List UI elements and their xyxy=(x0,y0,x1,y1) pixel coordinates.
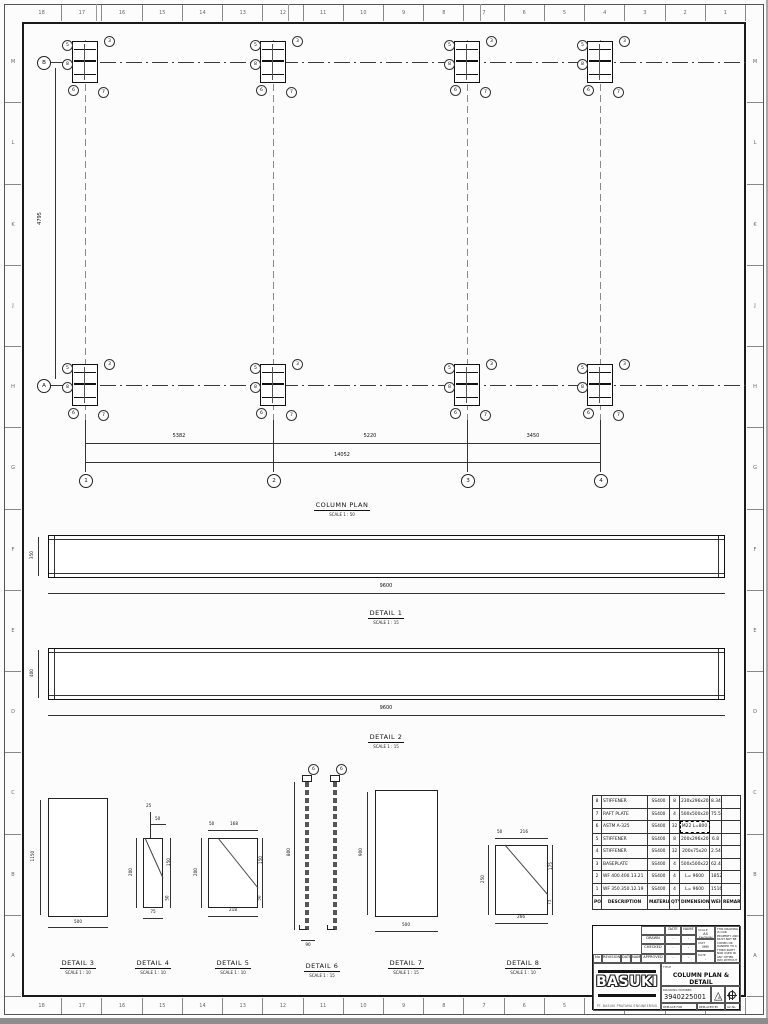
grid-bubble: 2 xyxy=(267,474,281,488)
detail4-dim-right1: 150 xyxy=(167,858,171,866)
detail5-dim-right1: 150 xyxy=(259,856,263,864)
rev-name-header: NAME xyxy=(631,954,641,963)
material-cell-pos: 8 xyxy=(593,796,602,809)
dimension-line xyxy=(136,838,137,908)
callout-balloon: 6 xyxy=(68,408,79,419)
detail4-dim-top2: 50 xyxy=(155,817,160,821)
callout-balloon: 7 xyxy=(286,87,297,98)
date-cell: DATE - xyxy=(696,951,715,963)
callout-balloon: 7 xyxy=(613,410,624,421)
anchor-bolt xyxy=(305,782,309,930)
material-cell-remark xyxy=(722,846,741,859)
material-cell-description: WF 400.400.13.21 xyxy=(602,871,648,884)
material-row: 4STIFFENERSS40032200x75x202.54 xyxy=(593,846,741,859)
total-dim: 14052 xyxy=(314,453,370,458)
detail8-dim-top1: 50 xyxy=(497,830,502,834)
drawing-number-cell: DRAWING NUMBER 3940225001 xyxy=(661,986,711,1003)
grid-bubble: B xyxy=(37,56,51,70)
callout-balloon: 8 xyxy=(62,382,73,393)
ruler-number: 12 xyxy=(263,5,303,21)
detail1-title: DETAIL 1 SCALE 1 : 15 xyxy=(343,600,429,625)
checked-name: - xyxy=(681,944,696,954)
dimension-line xyxy=(262,838,263,908)
material-header-cell: QTY xyxy=(670,896,680,910)
scale-cell: SCALE AS SHOWN xyxy=(696,926,715,939)
ruler-number: 9 xyxy=(384,998,424,1014)
callout-balloon: 6 xyxy=(256,408,267,419)
ruler-number: 5 xyxy=(545,998,585,1014)
detail1-label: DETAIL 1 xyxy=(368,609,405,619)
dimension-line xyxy=(375,931,438,932)
grid-line-vertical xyxy=(600,40,601,472)
logo-bar-top xyxy=(598,970,656,973)
ruler-number: 18 xyxy=(22,998,62,1014)
material-cell-weight xyxy=(710,821,722,834)
ruler-letter: E xyxy=(5,591,21,672)
column-symbol xyxy=(72,364,98,406)
detail3-title: DETAIL 3 SCALE 1 : 10 xyxy=(35,950,121,975)
material-cell-qty: 32 xyxy=(670,821,680,834)
callout-balloon: 6 xyxy=(336,764,347,775)
extension-line xyxy=(467,420,468,472)
detail5-label: DETAIL 5 xyxy=(215,959,252,969)
material-row: 6ASTM A-325SS40032M22 L=800 xyxy=(593,821,741,834)
ruler-number: 9 xyxy=(384,5,424,21)
ruler-letter: F xyxy=(747,510,763,591)
ruler-number: 14 xyxy=(183,998,223,1014)
callout-balloon: 7 xyxy=(480,87,491,98)
material-row: 2WF 400.400.13.21SS4004L= 96001852 xyxy=(593,871,741,884)
detail7-label: DETAIL 7 xyxy=(388,959,425,969)
material-table: 8STIFFENERSS4008230x296x208.347RAFT PLAT… xyxy=(592,795,741,910)
callout-balloon: 6 xyxy=(450,408,461,419)
callout-balloon: 6 xyxy=(583,408,594,419)
callout-balloon: 5 xyxy=(444,40,455,51)
callout-balloon: 3 xyxy=(292,36,303,47)
material-header-cell: DESCRIPTION xyxy=(602,896,648,910)
extension-line xyxy=(600,420,601,472)
ruler-letter: J xyxy=(747,266,763,347)
ruler-letter: M xyxy=(747,22,763,103)
ruler-letter: G xyxy=(747,428,763,509)
material-cell-material: SS400 xyxy=(648,821,670,834)
ruler-number: 18 xyxy=(22,5,62,21)
ruler-letter: A xyxy=(5,916,21,997)
detail8-label: DETAIL 8 xyxy=(505,959,542,969)
callout-balloon: 3 xyxy=(292,359,303,370)
ruler-number: 11 xyxy=(304,998,344,1014)
ruler-top: 181716151413121110987654321 xyxy=(22,5,746,21)
detail3-label: DETAIL 3 xyxy=(60,959,97,969)
callout-balloon: 5 xyxy=(250,363,261,374)
callout-balloon: 8 xyxy=(444,59,455,70)
detail3-plate xyxy=(48,798,108,917)
anchor-bolt-head xyxy=(302,775,312,782)
detail3-dim-bottom: 500 xyxy=(58,920,98,924)
grid-bubble: 3 xyxy=(461,474,475,488)
detail3-dim-left: 1150 xyxy=(31,851,35,862)
ruler-number: 13 xyxy=(223,5,263,21)
ruler-number: 17 xyxy=(62,998,102,1014)
callout-balloon: 6 xyxy=(256,85,267,96)
footer-replace-for: REPLACE FOR xyxy=(661,1003,697,1011)
detail6-title: DETAIL 6 SCALE 1 : 15 xyxy=(279,953,365,978)
callout-balloon: 3 xyxy=(104,359,115,370)
dimension-line xyxy=(208,830,258,831)
detail2-beam xyxy=(48,648,725,700)
detail4-dim-left: 200 xyxy=(129,868,133,876)
material-cell-pos: 3 xyxy=(593,858,602,871)
callout-balloon: 7 xyxy=(613,87,624,98)
approved-name: - xyxy=(681,954,696,963)
callout-balloon: 8 xyxy=(577,382,588,393)
rev-no-header: No xyxy=(593,954,602,963)
material-row: 8STIFFENERSS4008230x296x208.34 xyxy=(593,796,741,809)
ruler-letter: C xyxy=(747,753,763,834)
material-cell-qty: 8 xyxy=(670,796,680,809)
detail4-dim-top1: 25 xyxy=(146,804,151,808)
ruler-number: 17 xyxy=(62,5,102,21)
detail1-scale: SCALE 1 : 15 xyxy=(343,620,429,625)
material-cell-remark xyxy=(722,883,741,896)
material-cell-description: STIFFENER xyxy=(602,796,648,809)
ruler-left: MLKJHGFEDCBA xyxy=(5,22,21,997)
callout-balloon: 7 xyxy=(286,410,297,421)
callout-balloon: 5 xyxy=(62,40,73,51)
detail8-bevel-line xyxy=(495,845,548,915)
plan-title-text: COLUMN PLAN xyxy=(314,501,371,511)
dimension-line xyxy=(201,838,202,908)
callout-balloon: 5 xyxy=(250,40,261,51)
scan-edge xyxy=(0,1018,768,1024)
ruler-number: 5 xyxy=(545,5,585,21)
detail4-bevel-line xyxy=(143,838,163,908)
ruler-letter: J xyxy=(5,266,21,347)
dimension-line xyxy=(367,792,368,915)
detail7-scale: SCALE 1 : 15 xyxy=(363,970,449,975)
ruler-number: 13 xyxy=(223,998,263,1014)
detail7-dim-left: 900 xyxy=(359,848,363,856)
name-header: NAME xyxy=(681,926,696,935)
material-cell-pos: 6 xyxy=(593,821,602,834)
projection-cell xyxy=(725,986,741,1003)
ruler-letter: K xyxy=(747,185,763,266)
material-cell-remark xyxy=(722,796,741,809)
checked-label: CHECKED xyxy=(641,944,665,954)
title-label: TITLE xyxy=(662,964,740,969)
callout-balloon: 3 xyxy=(486,36,497,47)
detail5-dim-top2: 168 xyxy=(230,822,238,826)
approved-label: APPROVED xyxy=(641,954,665,963)
detail8-dim-right1: 175 xyxy=(549,862,553,870)
footer-replaced-by: REPLACED BY xyxy=(697,1003,725,1011)
detail8-dim-right2: 75 xyxy=(548,899,552,904)
material-cell-dimensions: 230x296x20 xyxy=(680,796,710,809)
drawn-name: - xyxy=(681,935,696,944)
drawing-number: 3940225001 xyxy=(662,993,710,1001)
dimension-line xyxy=(495,923,548,924)
span-dim-2: 5220 xyxy=(342,434,398,439)
unit-value: MM xyxy=(697,945,714,949)
material-cell-dimensions: L= 9600 xyxy=(680,871,710,884)
material-cell-weight: 2.54 xyxy=(710,846,722,859)
callout-balloon: 5 xyxy=(62,363,73,374)
material-cell-description: STIFFENER xyxy=(602,846,648,859)
detail3-scale: SCALE 1 : 10 xyxy=(35,970,121,975)
ruler-letter: M xyxy=(5,22,21,103)
material-cell-weight: 1516 xyxy=(710,883,722,896)
detail2-label: DETAIL 2 xyxy=(368,733,405,743)
material-cell-material: SS400 xyxy=(648,858,670,871)
callout-balloon: 3 xyxy=(619,36,630,47)
callout-balloon: 6 xyxy=(583,85,594,96)
material-cell-weight: 1852 xyxy=(710,871,722,884)
dimension-line xyxy=(38,650,39,698)
callout-balloon: 8 xyxy=(444,382,455,393)
material-cell-weight: 62.4 xyxy=(710,858,722,871)
detail6-scale: SCALE 1 : 15 xyxy=(279,973,365,978)
material-row: 1WF 350.350.12.19SS4004L= 96001516 xyxy=(593,883,741,896)
material-cell-description: WF 350.350.12.19 xyxy=(602,883,648,896)
anchor-bolt-hook xyxy=(327,925,335,930)
date-header: DATE xyxy=(665,926,681,935)
extension-line xyxy=(273,420,274,472)
material-header-row: POSDESCRIPTIONMATERIALQTYDIMENSIONSWEIGH… xyxy=(593,896,741,910)
material-cell-remark xyxy=(722,821,741,834)
ruler-letter: K xyxy=(5,185,21,266)
column-symbol xyxy=(260,41,286,83)
material-row: 7RAFT PLATESS4004500x500x2075.5 xyxy=(593,808,741,821)
column-symbol xyxy=(72,41,98,83)
column-symbol xyxy=(260,364,286,406)
ruler-number: 8 xyxy=(424,5,464,21)
ruler-letter: B xyxy=(5,835,21,916)
dimension-line xyxy=(38,537,39,576)
callout-balloon: 5 xyxy=(577,40,588,51)
callout-balloon: 3 xyxy=(619,359,630,370)
column-symbol xyxy=(454,41,480,83)
ruler-letter: L xyxy=(747,103,763,184)
ruler-number: 14 xyxy=(183,5,223,21)
grid-bubble: A xyxy=(37,379,51,393)
material-header-cell: WEIGHT xyxy=(710,896,722,910)
detail1-dim-left: 350 xyxy=(30,551,34,559)
material-cell-description: RAFT PLATE xyxy=(602,808,648,821)
ruler-number: 16 xyxy=(102,998,142,1014)
material-cell-pos: 2 xyxy=(593,871,602,884)
detail8-dim-top2: 216 xyxy=(520,830,528,834)
material-cell-qty: 8 xyxy=(670,833,680,846)
dimension-line xyxy=(143,918,163,919)
company-logo: BASUKI PT. BASUKI PRATAMA ENGINEERING xyxy=(593,963,661,1011)
material-cell-description: BASEPLATE xyxy=(602,858,648,871)
ruler-number: 10 xyxy=(344,998,384,1014)
detail7-plate xyxy=(375,790,438,917)
callout-balloon: 7 xyxy=(98,87,109,98)
dimension-line xyxy=(40,800,41,915)
detail2-dim-bottom: 9600 xyxy=(330,706,442,711)
material-cell-qty: 4 xyxy=(670,871,680,884)
detail5-dim-bottom: 218 xyxy=(213,908,253,912)
detail5-scale: SCALE 1 : 10 xyxy=(190,970,276,975)
detail6-dim-left: 800 xyxy=(287,848,291,856)
callout-balloon: 8 xyxy=(250,382,261,393)
drawing-title: COLUMN PLAN & DETAIL xyxy=(662,972,740,986)
ruler-letter: C xyxy=(5,753,21,834)
dimension-line xyxy=(48,715,725,716)
detail4-dim-bottom: 75 xyxy=(133,910,173,914)
callout-balloon: 8 xyxy=(250,59,261,70)
ruler-letter: D xyxy=(5,672,21,753)
ruler-number: 16 xyxy=(102,5,142,21)
detail5-dim-top1: 50 xyxy=(209,822,214,826)
material-cell-remark xyxy=(722,808,741,821)
grid-bubble: 4 xyxy=(594,474,608,488)
dimension-line xyxy=(495,838,548,839)
span-dim-3: 3450 xyxy=(505,434,561,439)
material-cell-material: SS400 xyxy=(648,808,670,821)
material-cell-qty: 4 xyxy=(670,858,680,871)
grid-line-vertical xyxy=(85,40,86,472)
rev-header: REVISION xyxy=(602,954,621,963)
material-cell-qty: 32 xyxy=(670,846,680,859)
callout-balloon: 7 xyxy=(98,410,109,421)
ruler-letter: L xyxy=(5,103,21,184)
material-cell-dimensions: 200x75x20 xyxy=(680,846,710,859)
material-cell-weight: 8.34 xyxy=(710,796,722,809)
ruler-number: 1 xyxy=(706,5,746,21)
material-row: 5STIFFENERSS4008200x296x206.8 xyxy=(593,833,741,846)
callout-balloon: 3 xyxy=(104,36,115,47)
approved-date: - xyxy=(665,954,681,963)
material-cell-pos: 4 xyxy=(593,846,602,859)
anchor-bolt xyxy=(333,782,337,930)
detail5-dim-left: 200 xyxy=(194,868,198,876)
dimension-line xyxy=(85,462,600,463)
detail6-dim-bottom: 90 xyxy=(288,943,328,947)
anchor-bolt-head xyxy=(330,775,340,782)
dimension-line xyxy=(208,916,258,917)
material-row: 3BASEPLATESS4004500x500x2262.4 xyxy=(593,858,741,871)
rev-date-header: DATE xyxy=(621,954,631,963)
scale-value: AS SHOWN xyxy=(697,932,714,940)
ruler-letter: H xyxy=(5,347,21,428)
dimension-line xyxy=(48,927,108,928)
ruler-number: 3 xyxy=(625,5,665,21)
material-cell-qty: 4 xyxy=(670,808,680,821)
detail2-title: DETAIL 2 SCALE 1 : 15 xyxy=(343,724,429,749)
column-symbol xyxy=(587,364,613,406)
detail5-title: DETAIL 5 SCALE 1 : 10 xyxy=(190,950,276,975)
material-cell-material: SS400 xyxy=(648,883,670,896)
material-cell-material: SS400 xyxy=(648,833,670,846)
revision-cell: △ A xyxy=(711,986,725,1003)
callout-balloon: 6 xyxy=(68,85,79,96)
material-cell-dimensions: 200x296x20 xyxy=(680,833,710,846)
material-cell-pos: 7 xyxy=(593,808,602,821)
dimension-line xyxy=(85,443,600,444)
detail5-bevel-line xyxy=(208,838,258,908)
plan-title: COLUMN PLAN SCALE 1 : 50 xyxy=(299,492,385,517)
detail1-beam xyxy=(48,535,725,578)
material-cell-material: SS400 xyxy=(648,846,670,859)
ruler-number: 4 xyxy=(585,5,625,21)
material-cell-remark xyxy=(722,858,741,871)
callout-balloon: 5 xyxy=(444,363,455,374)
drawing-title-cell: TITLE COLUMN PLAN & DETAIL xyxy=(661,963,741,986)
grid-line-vertical xyxy=(467,40,468,472)
dimension-line xyxy=(301,940,315,941)
projection-cone-icon xyxy=(739,992,741,1000)
ruler-letter: H xyxy=(747,347,763,428)
detail6-label: DETAIL 6 xyxy=(304,962,341,972)
revision-letter: A xyxy=(718,996,720,1000)
extension-line xyxy=(85,420,86,472)
ruler-number: 12 xyxy=(263,998,303,1014)
material-cell-description: ASTM A-325 xyxy=(602,821,648,834)
ruler-number: 7 xyxy=(464,5,504,21)
footer-sheet-size: A2 No. xyxy=(725,1003,741,1011)
dimension-line xyxy=(552,845,553,915)
ruler-letter: G xyxy=(5,428,21,509)
detail1-dim-bottom: 9600 xyxy=(330,584,442,589)
detail7-dim-bottom: 500 xyxy=(386,923,426,927)
material-cell-pos: 5 xyxy=(593,833,602,846)
logo-bar-bottom xyxy=(598,994,656,997)
callout-balloon: 5 xyxy=(577,363,588,374)
drawing-sheet: 181716151413121110987654321 181716151413… xyxy=(0,0,768,1024)
material-header-cell: REMARK xyxy=(722,896,741,910)
drawn-date: - xyxy=(665,935,681,944)
detail8-dim-bottom: 266 xyxy=(501,915,541,919)
title-block: No REVISION DATE NAME DRAWN CHECKED APPR… xyxy=(592,925,740,1010)
material-cell-weight: 6.8 xyxy=(710,833,722,846)
ruler-letter: E xyxy=(747,591,763,672)
plan-dim-left: 4795 xyxy=(38,212,43,225)
dimension-line xyxy=(48,593,725,594)
company-subtitle: PT. BASUKI PRATAMA ENGINEERING xyxy=(594,1004,660,1008)
column-symbol xyxy=(587,41,613,83)
anchor-bolt-hook xyxy=(299,925,307,930)
ruler-letter: B xyxy=(747,835,763,916)
callout-balloon: 6 xyxy=(450,85,461,96)
unit-cell: UNIT MM xyxy=(696,939,715,951)
material-header-cell: MATERIAL xyxy=(648,896,670,910)
ruler-number: 10 xyxy=(344,5,384,21)
callout-balloon: 3 xyxy=(486,359,497,370)
ruler-number: 8 xyxy=(424,998,464,1014)
dimension-line xyxy=(170,838,171,908)
material-cell-dimensions[interactable]: M22 L=800 xyxy=(680,821,710,834)
material-cell-pos: 1 xyxy=(593,883,602,896)
detail4-label: DETAIL 4 xyxy=(135,959,172,969)
ruler-number: 15 xyxy=(143,998,183,1014)
material-cell-dimensions: L= 9600 xyxy=(680,883,710,896)
ruler-number: 6 xyxy=(505,998,545,1014)
property-note: THIS DRAWING IS OUR PROPERTY AND MUST NO… xyxy=(715,926,741,963)
material-cell-description: STIFFENER xyxy=(602,833,648,846)
material-cell-dimensions: 500x500x22 xyxy=(680,858,710,871)
material-cell-dimensions: 500x500x20 xyxy=(680,808,710,821)
material-header-cell: POS xyxy=(593,896,602,910)
dimension-line xyxy=(294,782,295,930)
detail4-scale: SCALE 1 : 10 xyxy=(110,970,196,975)
detail5-dim-right2: 50 xyxy=(258,895,262,900)
material-header-cell: DIMENSIONS xyxy=(680,896,710,910)
detail4-title: DETAIL 4 SCALE 1 : 10 xyxy=(110,950,196,975)
date-value: - xyxy=(697,957,714,961)
ruler-letter: D xyxy=(747,672,763,753)
